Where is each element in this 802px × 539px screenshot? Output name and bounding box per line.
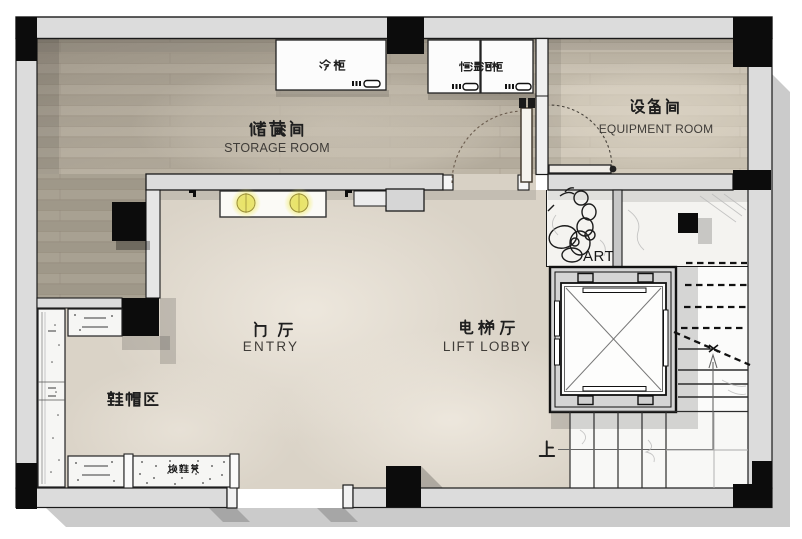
svg-text:ART: ART: [583, 248, 614, 265]
svg-text:LIFT LOBBY: LIFT LOBBY: [443, 339, 531, 354]
svg-text:STORAGE ROOM: STORAGE ROOM: [224, 141, 330, 155]
svg-text:EQUIPMENT ROOM: EQUIPMENT ROOM: [599, 122, 714, 136]
svg-text:ENTRY: ENTRY: [243, 339, 300, 354]
